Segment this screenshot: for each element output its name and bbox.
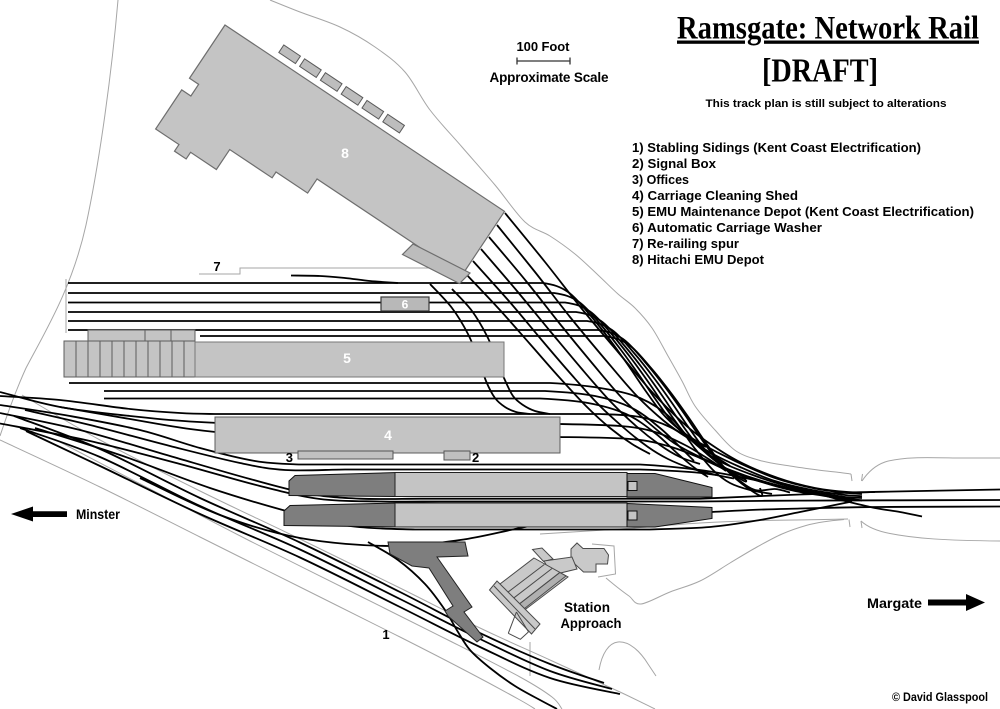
svg-text:6: 6 [402,298,409,312]
svg-text:Approach: Approach [561,616,622,631]
svg-text:This track plan is still subje: This track plan is still subject to alte… [706,98,947,110]
svg-text:2: 2 [472,450,479,465]
svg-text:5: 5 [343,350,351,366]
svg-text:[DRAFT]: [DRAFT] [762,53,878,90]
svg-text:7) Re-railing spur: 7) Re-railing spur [632,236,739,251]
svg-text:Margate: Margate [867,596,923,611]
svg-text:Station: Station [564,600,610,615]
svg-text:1) Stabling Sidings (Kent Coas: 1) Stabling Sidings (Kent Coast Electrif… [632,140,921,155]
svg-text:8) Hitachi EMU Depot: 8) Hitachi EMU Depot [632,252,765,267]
svg-text:Approximate Scale: Approximate Scale [490,70,609,85]
svg-text:Ramsgate: Network Rail: Ramsgate: Network Rail [677,11,979,47]
svg-text:5) EMU Maintenance Depot (Kent: 5) EMU Maintenance Depot (Kent Coast Ele… [632,204,974,219]
svg-text:Minster: Minster [76,507,121,522]
svg-text:100 Foot: 100 Foot [517,39,571,54]
svg-text:7: 7 [213,259,220,274]
svg-text:3) Offices: 3) Offices [632,172,689,187]
svg-text:2) Signal Box: 2) Signal Box [632,156,717,171]
svg-text:© David Glasspool: © David Glasspool [892,690,988,704]
svg-text:8: 8 [341,145,349,161]
svg-text:6) Automatic Carriage Washer: 6) Automatic Carriage Washer [632,220,822,235]
svg-text:3: 3 [286,450,293,465]
svg-text:4: 4 [384,427,392,443]
svg-text:1: 1 [382,627,389,642]
svg-text:4) Carriage Cleaning Shed: 4) Carriage Cleaning Shed [632,188,798,203]
